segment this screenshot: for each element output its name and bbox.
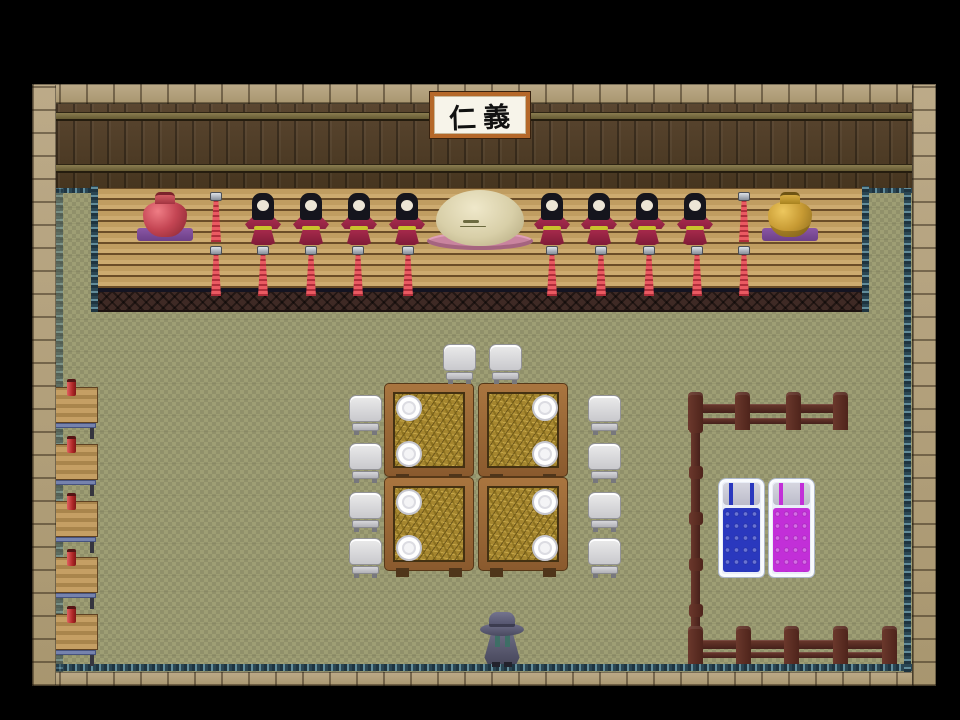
red-candle-stack — [689, 246, 705, 298]
fence-post — [689, 420, 703, 433]
plate — [396, 489, 422, 515]
fence-rail — [688, 404, 848, 413]
hanging-sign-board: 仁義 — [430, 92, 530, 138]
player-cloak — [483, 635, 521, 664]
stool-base — [492, 372, 519, 380]
candle-rings — [403, 255, 413, 296]
doll-belt — [398, 226, 416, 230]
plate — [532, 441, 558, 467]
desk-leg — [90, 655, 94, 666]
doll-belt — [543, 226, 561, 230]
plate — [396, 395, 422, 421]
candle-holder — [691, 246, 703, 255]
candle-holder — [643, 246, 655, 255]
game-screen: 仁義 — [0, 0, 960, 720]
red-candle-stack — [400, 246, 416, 298]
stool[interactable] — [588, 492, 621, 532]
bed[interactable] — [718, 478, 765, 578]
candle-holder — [210, 192, 222, 201]
bed[interactable] — [768, 478, 815, 578]
stool[interactable] — [349, 538, 382, 578]
red-candle-stack — [350, 246, 366, 298]
dining-table[interactable] — [478, 383, 568, 477]
stool[interactable] — [349, 395, 382, 435]
candle-holder — [305, 246, 317, 255]
stool-base — [352, 566, 379, 574]
kokeshi-doll[interactable] — [339, 193, 379, 245]
red-candle-stack — [593, 246, 609, 298]
stool-seat — [349, 538, 382, 565]
doll-face — [401, 200, 413, 211]
doll-face — [546, 200, 558, 211]
doll-belt — [254, 226, 272, 230]
red-candle-stack — [208, 192, 224, 244]
fence-post — [735, 392, 750, 430]
desk-leg — [90, 542, 94, 553]
floor-trim — [91, 186, 98, 312]
stool[interactable] — [489, 344, 522, 384]
bed-pillow — [723, 483, 760, 505]
floor-trim — [862, 186, 869, 312]
wall-beam — [56, 164, 912, 173]
red-candle-stack — [736, 246, 752, 298]
candle-rings — [692, 255, 702, 296]
fence-post — [688, 626, 703, 664]
red-bottle — [67, 436, 76, 453]
fence-post — [736, 626, 751, 664]
kokeshi-doll[interactable] — [243, 193, 283, 245]
red-candle-stack — [208, 246, 224, 298]
candle-rings — [596, 255, 606, 296]
bed-pillow — [773, 483, 810, 505]
red-candle-stack — [641, 246, 657, 298]
fence-post — [882, 626, 897, 664]
red-bottle — [67, 379, 76, 396]
fence-post — [833, 392, 848, 430]
stool-base — [591, 566, 618, 574]
kokeshi-doll[interactable] — [675, 193, 715, 245]
candle-rings — [739, 201, 749, 242]
doll-face — [305, 200, 317, 211]
candle-rings — [258, 255, 268, 296]
plate — [532, 395, 558, 421]
gold-vase[interactable] — [762, 192, 818, 242]
stool-seat — [443, 344, 476, 371]
candle-rings — [211, 201, 221, 242]
stool[interactable] — [443, 344, 476, 384]
doll-belt — [302, 226, 320, 230]
candle-holder — [257, 246, 269, 255]
hat-crown-icon — [489, 612, 515, 627]
stool-seat — [588, 443, 621, 470]
stool-seat — [349, 395, 382, 422]
candle-rings — [739, 255, 749, 296]
doll-face — [593, 200, 605, 211]
sign-text: 仁義 — [448, 94, 517, 135]
fence-post — [689, 466, 703, 479]
stool[interactable] — [349, 492, 382, 532]
stone-border-left — [32, 84, 56, 686]
stone-border-right — [912, 84, 936, 686]
stool-seat — [349, 492, 382, 519]
stool-seat — [588, 492, 621, 519]
stool-base — [591, 471, 618, 479]
candle-holder — [352, 246, 364, 255]
red-candle-stack — [544, 246, 560, 298]
stool[interactable] — [588, 443, 621, 483]
table-leg — [543, 568, 556, 577]
table-leg — [490, 568, 503, 577]
plate — [532, 489, 558, 515]
doll-face — [353, 200, 365, 211]
plate — [532, 535, 558, 561]
candle-holder — [546, 246, 558, 255]
candle-holder — [402, 246, 414, 255]
bed-quilt — [773, 508, 810, 572]
vase-body — [143, 201, 187, 237]
doll-skirt — [347, 229, 371, 245]
fence-rail — [691, 416, 700, 660]
stool-base — [591, 423, 618, 431]
stool-seat — [349, 443, 382, 470]
stool[interactable] — [588, 395, 621, 435]
fence-post — [689, 558, 703, 571]
fence-post — [786, 392, 801, 430]
doll-skirt — [635, 229, 659, 245]
doll-face — [641, 200, 653, 211]
candle-holder — [738, 246, 750, 255]
candle-rings — [353, 255, 363, 296]
dining-table[interactable] — [384, 477, 474, 571]
red-vase[interactable] — [137, 192, 193, 242]
stool[interactable] — [349, 443, 382, 483]
stool-seat — [588, 395, 621, 422]
floor-trim — [904, 186, 911, 672]
stool-base — [352, 520, 379, 528]
table-leg — [449, 568, 462, 577]
bed-quilt — [723, 508, 760, 572]
stool-base — [352, 471, 379, 479]
candle-rings — [211, 255, 221, 296]
red-candle-stack — [303, 246, 319, 298]
red-bottle — [67, 606, 76, 623]
stool-seat — [489, 344, 522, 371]
doll-belt — [590, 226, 608, 230]
doll-face — [689, 200, 701, 211]
doll-belt — [686, 226, 704, 230]
candle-rings — [306, 255, 316, 296]
red-bottle — [67, 493, 76, 510]
doll-skirt — [587, 229, 611, 245]
desk-leg — [90, 485, 94, 496]
kokeshi-doll[interactable] — [532, 193, 572, 245]
kokeshi-doll[interactable] — [291, 193, 331, 245]
red-bottle — [67, 549, 76, 566]
fence-post — [833, 626, 848, 664]
red-candle-stack — [736, 192, 752, 244]
giant-rice-ball[interactable] — [427, 190, 533, 250]
desk-leg — [90, 598, 94, 609]
doll-skirt — [683, 229, 707, 245]
candle-rings — [644, 255, 654, 296]
vase-body — [768, 201, 812, 237]
stool[interactable] — [588, 538, 621, 578]
doll-skirt — [395, 229, 419, 245]
candle-rings — [547, 255, 557, 296]
red-candle-stack — [255, 246, 271, 298]
doll-belt — [638, 226, 656, 230]
fence-post — [689, 512, 703, 525]
table-leg — [396, 568, 409, 577]
fence-post — [784, 626, 799, 664]
stool-base — [446, 372, 473, 380]
dining-table[interactable] — [478, 477, 568, 571]
candle-holder — [738, 192, 750, 201]
kokeshi-doll[interactable] — [627, 193, 667, 245]
kokeshi-doll[interactable] — [579, 193, 619, 245]
stone-border-bottom — [32, 672, 936, 686]
rice-ball-mark — [463, 220, 479, 223]
player-feet — [492, 662, 500, 667]
candle-holder — [210, 246, 222, 255]
doll-face — [257, 200, 269, 211]
doll-skirt — [540, 229, 564, 245]
vase-neck — [780, 192, 800, 204]
dining-table[interactable] — [384, 383, 474, 477]
stool-seat — [588, 538, 621, 565]
player-character[interactable] — [479, 604, 525, 668]
vase-neck — [155, 192, 175, 204]
stool-base — [352, 423, 379, 431]
stool-base — [591, 520, 618, 528]
candle-holder — [595, 246, 607, 255]
doll-skirt — [251, 229, 275, 245]
rice-ball — [436, 190, 524, 246]
kokeshi-doll[interactable] — [387, 193, 427, 245]
doll-skirt — [299, 229, 323, 245]
plate — [396, 441, 422, 467]
fence-post — [689, 604, 703, 617]
plate — [396, 535, 422, 561]
doll-belt — [350, 226, 368, 230]
desk-leg — [90, 428, 94, 439]
fence-rail — [688, 418, 848, 424]
